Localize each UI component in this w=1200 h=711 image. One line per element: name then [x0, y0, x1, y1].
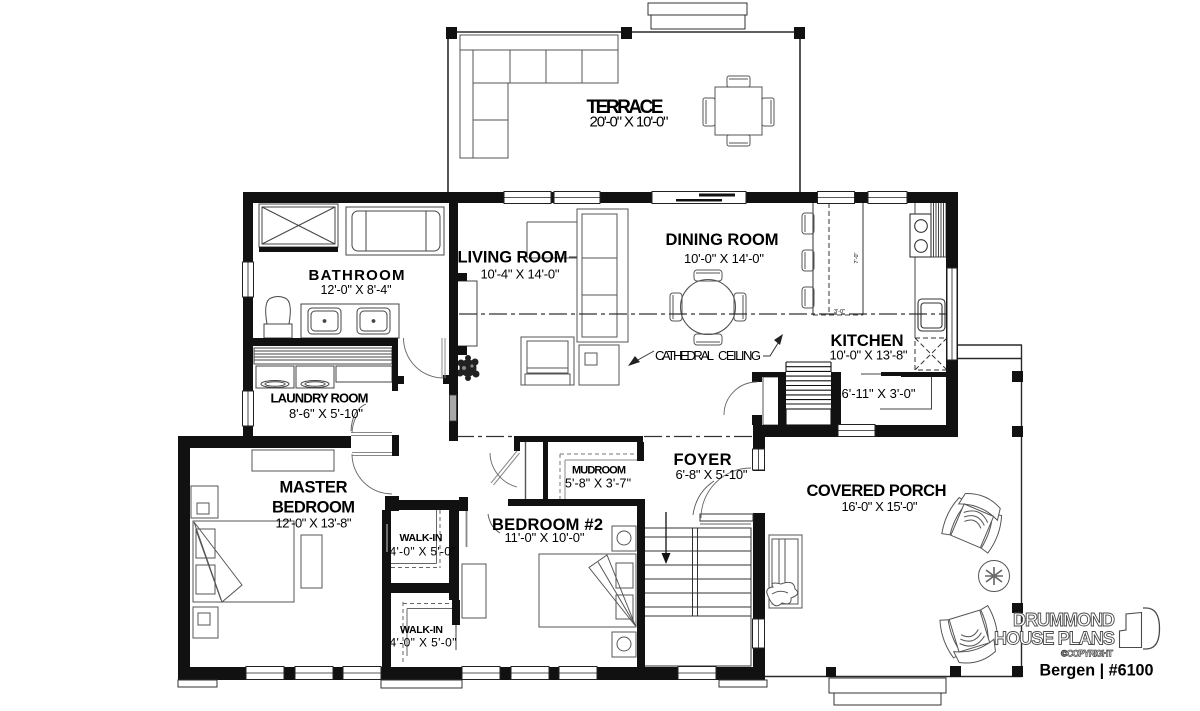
svg-text:WALK-IN: WALK-IN: [400, 532, 443, 544]
svg-text:3'-0": 3'-0": [834, 309, 845, 315]
svg-text:10'-0" X 13'-8": 10'-0" X 13'-8": [830, 348, 908, 363]
svg-text:MUDROOM: MUDROOM: [572, 465, 626, 477]
svg-text:Bergen | #6100: Bergen | #6100: [1040, 661, 1154, 680]
svg-text:4'-0" X 5'-0": 4'-0" X 5'-0": [390, 636, 457, 650]
svg-text:4'-0" X 5'-0": 4'-0" X 5'-0": [390, 545, 456, 559]
svg-text:16'-0" X 15'-0": 16'-0" X 15'-0": [842, 499, 918, 514]
svg-text:8'-6" X 5'-10": 8'-6" X 5'-10": [289, 406, 363, 421]
svg-text:12'-0" X 13'-8": 12'-0" X 13'-8": [276, 516, 352, 531]
svg-text:MASTER: MASTER: [280, 479, 348, 497]
svg-text:HOUSE PLANS: HOUSE PLANS: [994, 629, 1115, 649]
svg-text:DINING ROOM: DINING ROOM: [666, 231, 779, 249]
svg-text:DRUMMOND: DRUMMOND: [1013, 610, 1115, 630]
svg-text:CATHEDRAL: CATHEDRAL: [655, 348, 714, 363]
svg-text:7'-0": 7'-0": [854, 252, 860, 263]
svg-text:10'-0" X 14'-0": 10'-0" X 14'-0": [684, 251, 764, 266]
svg-text:©COPYRIGHT: ©COPYRIGHT: [1061, 649, 1114, 659]
svg-text:6'-11" X 3'-0": 6'-11" X 3'-0": [842, 386, 916, 401]
svg-text:10'-4" X 14'-0": 10'-4" X 14'-0": [481, 267, 560, 282]
svg-text:20'-0" X 10'-0": 20'-0" X 10'-0": [590, 114, 669, 131]
svg-text:11'-0" X 10'-0": 11'-0" X 10'-0": [505, 530, 585, 545]
svg-text:5'-8" X 3'-7": 5'-8" X 3'-7": [565, 477, 631, 491]
svg-text:12'-0" X 8'-4": 12'-0" X 8'-4": [321, 283, 392, 297]
svg-text:LAUNDRY ROOM: LAUNDRY ROOM: [271, 391, 369, 406]
svg-text:BEDROOM: BEDROOM: [272, 499, 355, 517]
svg-text:WALK-IN: WALK-IN: [400, 624, 443, 636]
svg-text:6'-8" X 5'-10": 6'-8" X 5'-10": [676, 467, 748, 482]
svg-text:BATHROOM: BATHROOM: [309, 267, 405, 284]
svg-text:LIVING ROOM: LIVING ROOM: [458, 249, 568, 267]
svg-text:CEILING: CEILING: [718, 348, 761, 363]
svg-text:COVERED PORCH: COVERED PORCH: [807, 482, 947, 500]
